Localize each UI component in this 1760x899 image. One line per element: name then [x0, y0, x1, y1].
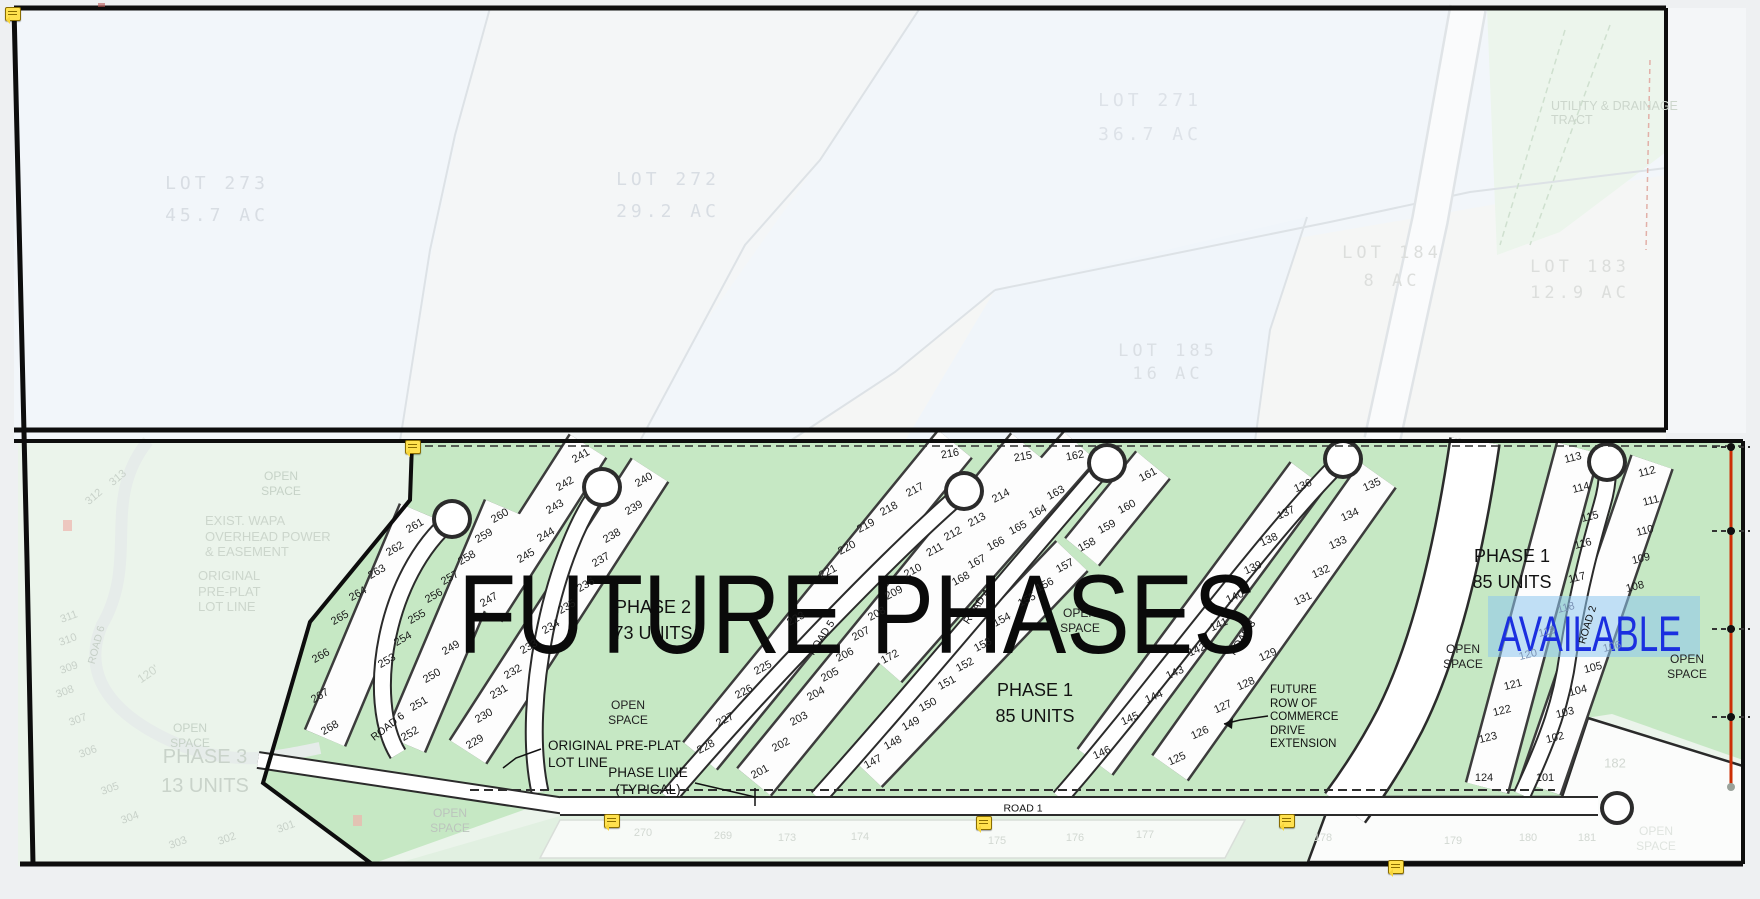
lot-number: 226 — [733, 682, 755, 701]
lot-number: 238 — [601, 526, 623, 546]
lot-number: 133 — [1327, 534, 1349, 552]
open-space-label-line: SPACE — [1667, 667, 1707, 682]
plat-map-canvas: LOT 27345.7 ACLOT 27229.2 ACLOT 27136.7 … — [0, 0, 1760, 899]
dim-120-label-line: 120' — [135, 662, 162, 687]
lot-number: 227 — [714, 710, 736, 729]
lot-number: 254 — [392, 629, 414, 649]
faint-lot-number: 182 — [1604, 756, 1626, 771]
future-row-commerce-note-line: COMMERCE — [1270, 711, 1338, 725]
utility-drainage-tract-label-line: TRACT — [1551, 113, 1678, 127]
lot-number: 125 — [1166, 750, 1188, 768]
future-phases-overlay[interactable]: FUTURE PHASES — [458, 548, 1257, 682]
open-space-label: OPENSPACE — [608, 698, 648, 728]
lot-number: 268 — [319, 718, 341, 738]
note-annotation-icon[interactable] — [976, 816, 992, 830]
phase-line-note-line: PHASE LINE — [608, 764, 688, 781]
lot-number: 267 — [309, 686, 331, 706]
lot-number: 123 — [1478, 730, 1499, 746]
lot-number: 146 — [1091, 744, 1113, 762]
original-preplat-note-line: ORIGINAL PRE-PLAT — [548, 737, 681, 754]
label-layer: LOT 27345.7 ACLOT 27229.2 ACLOT 27136.7 … — [0, 0, 1760, 899]
open-space-label: OPENSPACE — [1443, 642, 1483, 672]
faint-lot-number: 180 — [1519, 832, 1537, 844]
lot-number: 228 — [695, 737, 717, 756]
lot-number: 149 — [900, 714, 922, 733]
lot-number: 240 — [633, 470, 655, 490]
lot-184-label-line: 8 AC — [1342, 267, 1442, 295]
faint-lot-number: 178 — [1314, 832, 1332, 844]
lot-number: 136 — [1292, 477, 1314, 495]
faint-lot-number: 302 — [216, 830, 237, 848]
utility-drainage-tract-label-line: UTILITY & DRAINAGE — [1551, 99, 1678, 113]
phase-1-right-label-line: 85 UNITS — [1472, 569, 1551, 595]
phase-1-center-label-line: 85 UNITS — [995, 703, 1074, 729]
faint-lot-number: 176 — [1066, 832, 1084, 844]
open-space-faint-label-line: SPACE — [1636, 839, 1676, 854]
faint-lot-number: 312 — [83, 487, 105, 508]
lot-183-label-line: 12.9 AC — [1530, 280, 1630, 306]
phase-3-label: PHASE 313 UNITS — [161, 743, 249, 801]
faint-lot-number: 306 — [77, 743, 98, 761]
future-row-commerce-note-line: EXTENSION — [1270, 738, 1338, 752]
faint-lot-number: 270 — [634, 827, 652, 839]
phase-line-note: PHASE LINE(TYPICAL) — [608, 764, 688, 798]
faint-lot-number: 179 — [1444, 835, 1462, 847]
lot-number: 263 — [366, 562, 388, 582]
lot-number: 109 — [1631, 551, 1652, 567]
phase-3-label-line: 13 UNITS — [161, 772, 249, 801]
lot-number: 214 — [990, 486, 1012, 505]
lot-number: 216 — [940, 446, 960, 461]
lot-185-label-line: LOT 185 — [1118, 340, 1218, 363]
lot-number: 231 — [488, 682, 510, 702]
lot-number: 252 — [399, 724, 421, 744]
lot-number: 256 — [423, 586, 445, 606]
exist-wapa-note-line: & EASEMENT — [205, 544, 331, 560]
lot-number: 241 — [570, 446, 592, 466]
lot-number: 126 — [1189, 724, 1211, 742]
faint-lot-number: 174 — [851, 831, 869, 843]
future-row-commerce-note-line: DRIVE — [1270, 725, 1338, 739]
open-space-faint-label-line: SPACE — [261, 484, 301, 499]
lot-183-label: LOT 18312.9 AC — [1530, 254, 1630, 306]
lot-number: 203 — [788, 709, 810, 728]
faint-lot-number: 173 — [778, 832, 796, 844]
lot-number: 147 — [862, 752, 884, 771]
lot-272-label: LOT 27229.2 AC — [616, 164, 720, 228]
lot-number: 114 — [1571, 480, 1591, 496]
lot-number: 264 — [347, 584, 369, 604]
note-annotation-icon[interactable] — [1279, 814, 1295, 828]
lot-number: 163 — [1045, 483, 1067, 502]
lot-number: 137 — [1275, 504, 1297, 522]
open-space-faint-label: OPENSPACE — [1636, 824, 1676, 854]
lot-number: 111 — [1641, 493, 1660, 509]
revision-mark — [63, 520, 72, 531]
lot-number: 244 — [535, 525, 557, 545]
open-space-faint-label: OPENSPACE — [430, 806, 470, 836]
lot-number: 101 — [1536, 772, 1554, 784]
exist-wapa-note-line: OVERHEAD POWER — [205, 529, 331, 545]
lot-number: 127 — [1212, 698, 1234, 716]
open-space-faint-label-line: OPEN — [261, 469, 301, 484]
lot-number: 117 — [1567, 570, 1587, 586]
lot-number: 150 — [917, 695, 939, 714]
lot-273-label: LOT 27345.7 AC — [165, 168, 269, 232]
faint-lot-number: 269 — [714, 830, 732, 842]
revision-mark — [353, 815, 362, 826]
faint-lot-number: 305 — [99, 780, 120, 798]
open-space-faint-label-line: SPACE — [430, 821, 470, 836]
note-annotation-icon[interactable] — [405, 440, 421, 454]
lot-number: 261 — [404, 516, 426, 536]
lot-number: 159 — [1096, 517, 1118, 536]
open-space-faint-label-line: SPACE — [170, 736, 210, 751]
lot-number: 250 — [421, 666, 443, 686]
open-space-label-line: OPEN — [608, 698, 648, 713]
lot-number: 262 — [384, 539, 406, 559]
lot-271-label-line: 36.7 AC — [1098, 118, 1202, 152]
lot-number: 212 — [942, 524, 964, 543]
lot-number: 104 — [1568, 683, 1589, 699]
original-preplat-faint-note: ORIGINALPRE-PLATLOT LINE — [198, 568, 261, 615]
open-space-label-line: SPACE — [608, 713, 648, 728]
lot-number: 115 — [1580, 509, 1600, 525]
lot-number: 229 — [464, 732, 486, 752]
open-space-faint-label-line: OPEN — [430, 806, 470, 821]
phase-1-right-label-line: PHASE 1 — [1472, 543, 1551, 569]
lot-number: 219 — [855, 516, 877, 535]
faint-lot-number: 307 — [67, 711, 88, 729]
lot-number: 121 — [1503, 677, 1524, 693]
lot-number: 243 — [544, 497, 566, 517]
lot-number: 124 — [1475, 772, 1493, 784]
lot-number: 162 — [1065, 448, 1085, 463]
lot-number: 110 — [1635, 523, 1655, 539]
lot-number: 144 — [1143, 688, 1165, 706]
lot-number: 160 — [1116, 497, 1138, 516]
faint-lot-number: 311 — [59, 608, 80, 625]
lot-272-label-line: LOT 272 — [616, 164, 720, 196]
dim-120-label: 120' — [135, 662, 162, 687]
future-row-commerce-note-line: ROW OF — [1270, 698, 1338, 712]
lot-number: 122 — [1492, 703, 1513, 719]
lot-number: 135 — [1361, 476, 1383, 494]
lot-number: 113 — [1563, 450, 1583, 466]
road-1-label: ROAD 1 — [1003, 803, 1042, 816]
note-annotation-icon[interactable] — [604, 814, 620, 828]
faint-lot-number: 308 — [54, 683, 75, 701]
faint-lot-number: 177 — [1136, 829, 1154, 841]
lot-number: 253 — [376, 651, 398, 671]
faint-lot-number: 309 — [58, 659, 79, 677]
lot-184-label-line: LOT 184 — [1342, 239, 1442, 267]
lot-271-label: LOT 27136.7 AC — [1098, 84, 1202, 152]
lot-number: 260 — [489, 506, 511, 526]
lot-number: 202 — [770, 735, 792, 754]
faint-lot-number: 304 — [119, 809, 140, 827]
lot-number: 259 — [473, 526, 495, 546]
road-6-faint-label-line: ROAD 6 — [86, 624, 108, 665]
lot-number: 204 — [805, 684, 827, 703]
lot-number: 112 — [1637, 464, 1657, 480]
lot-number: 201 — [749, 762, 771, 781]
faint-lot-number: 175 — [988, 835, 1006, 847]
lot-number: 265 — [329, 608, 351, 628]
lot-183-label-line: LOT 183 — [1530, 254, 1630, 280]
faint-lot-number: 303 — [167, 834, 188, 852]
lot-number: 164 — [1027, 502, 1049, 521]
open-space-faint-label: OPENSPACE — [170, 721, 210, 751]
faint-lot-number: 301 — [275, 818, 296, 836]
lot-number: 255 — [406, 607, 428, 627]
lot-number: 138 — [1258, 531, 1280, 549]
exist-wapa-note: EXIST. WAPAOVERHEAD POWER& EASEMENT — [205, 513, 331, 560]
lot-number: 266 — [310, 646, 332, 666]
lot-number: 132 — [1310, 563, 1332, 581]
lot-number: 108 — [1625, 579, 1646, 595]
lot-185-label: LOT 18516 AC — [1118, 340, 1218, 386]
lot-273-label-line: 45.7 AC — [165, 200, 269, 232]
lot-number: 148 — [882, 733, 904, 752]
lot-number: 102 — [1545, 730, 1566, 746]
open-space-faint-label-line: OPEN — [1636, 824, 1676, 839]
open-space-label-line: OPEN — [1443, 642, 1483, 657]
lot-number: 116 — [1573, 536, 1593, 552]
utility-drainage-tract-label: UTILITY & DRAINAGETRACT — [1551, 99, 1678, 127]
exist-wapa-note-line: EXIST. WAPA — [205, 513, 331, 529]
open-space-faint-label: OPENSPACE — [261, 469, 301, 499]
lot-271-label-line: LOT 271 — [1098, 84, 1202, 118]
lot-number: 103 — [1555, 705, 1576, 721]
future-phases-overlay-line: FUTURE PHASES — [458, 548, 1257, 682]
lot-number: 217 — [904, 480, 926, 499]
faint-lot-number: 310 — [57, 631, 78, 649]
original-preplat-faint-note-line: PRE-PLAT — [198, 584, 261, 600]
lot-number: 134 — [1339, 506, 1361, 524]
lot-185-label-line: 16 AC — [1118, 363, 1218, 386]
original-preplat-faint-note-line: LOT LINE — [198, 599, 261, 615]
lot-184-label: LOT 1848 AC — [1342, 239, 1442, 295]
lot-number: 129 — [1257, 646, 1279, 664]
faint-lot-number: 181 — [1578, 832, 1596, 844]
original-preplat-faint-note-line: ORIGINAL — [198, 568, 261, 584]
open-space-label-line: SPACE — [1443, 657, 1483, 672]
phase-1-right-label: PHASE 185 UNITS — [1472, 543, 1551, 595]
note-annotation-icon[interactable] — [5, 7, 21, 21]
road-1-label-line: ROAD 1 — [1003, 803, 1042, 816]
lot-number: 230 — [473, 706, 495, 726]
future-row-commerce-note: FUTUREROW OFCOMMERCEDRIVEEXTENSION — [1270, 684, 1338, 752]
lot-number: 213 — [966, 510, 988, 529]
lot-number: 215 — [1013, 449, 1033, 464]
lot-number: 165 — [1007, 518, 1029, 537]
lot-number: 131 — [1292, 590, 1314, 608]
lot-number: 161 — [1137, 465, 1159, 484]
note-annotation-icon[interactable] — [1388, 860, 1404, 874]
phase-line-note-line: (TYPICAL) — [608, 781, 688, 798]
open-space-faint-label-line: OPEN — [170, 721, 210, 736]
phase-1-center-label: PHASE 185 UNITS — [995, 677, 1074, 729]
future-row-commerce-note-line: FUTURE — [1270, 684, 1338, 698]
faint-lot-number: 313 — [107, 468, 129, 489]
lot-number: 145 — [1119, 710, 1141, 728]
lot-number: 242 — [554, 474, 576, 494]
lot-272-label-line: 29.2 AC — [616, 196, 720, 228]
lot-273-label-line: LOT 273 — [165, 168, 269, 200]
road-6-faint-label: ROAD 6 — [86, 624, 108, 665]
lot-number: 218 — [878, 499, 900, 518]
lot-number: 239 — [623, 498, 645, 518]
lot-number: 251 — [408, 694, 430, 714]
